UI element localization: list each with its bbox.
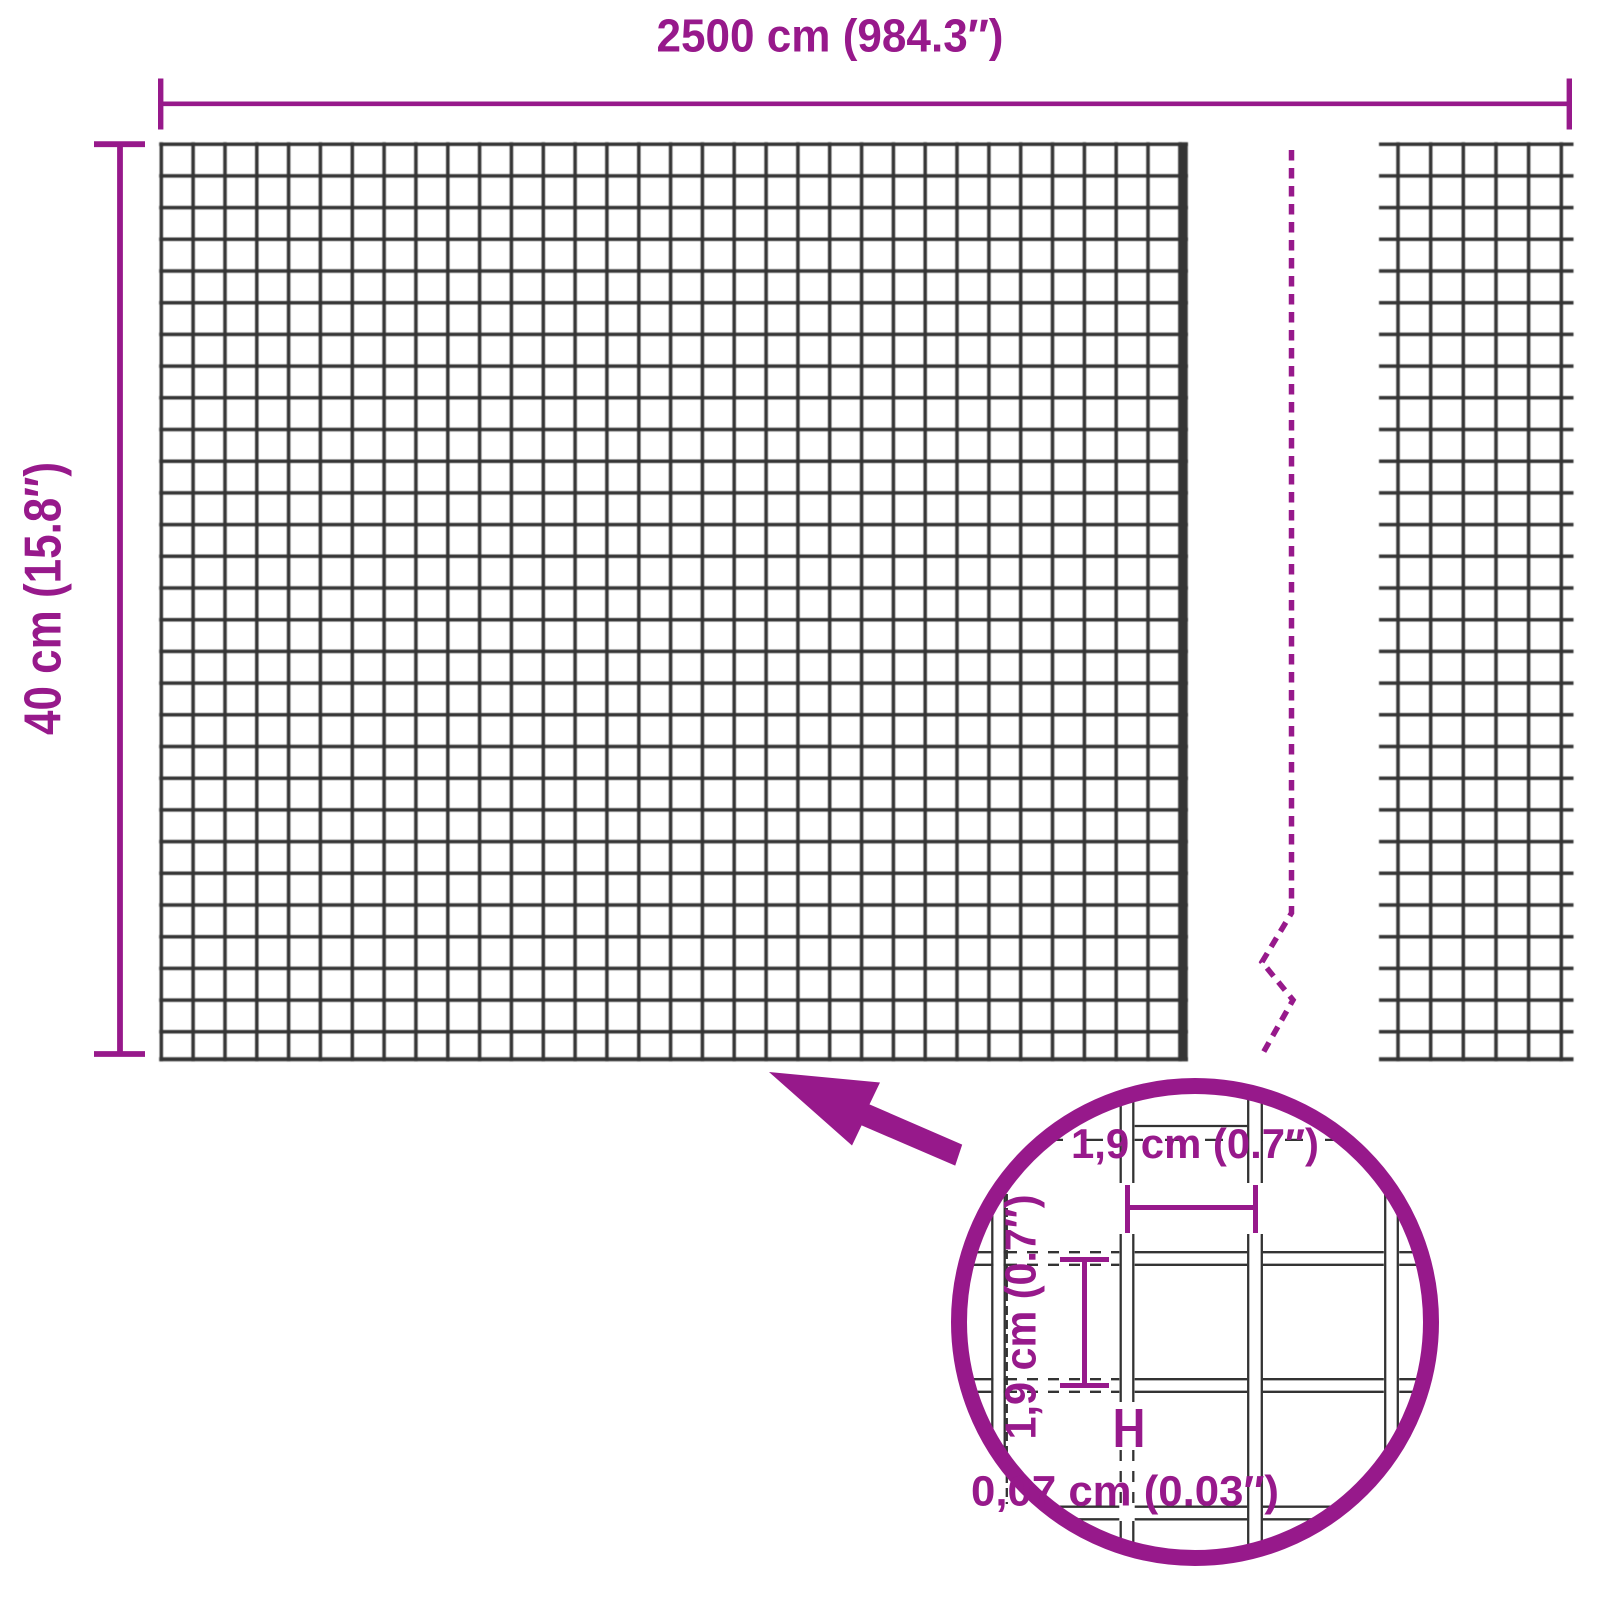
svg-text:1,9 cm (0.7″): 1,9 cm (0.7″) — [1071, 1120, 1319, 1167]
svg-text:40 cm (15.8″): 40 cm (15.8″) — [15, 462, 73, 735]
svg-text:0,07 cm (0.03″): 0,07 cm (0.03″) — [971, 1468, 1279, 1516]
svg-text:2500 cm (984.3″): 2500 cm (984.3″) — [657, 10, 1004, 62]
svg-text:1,9 cm (0.7″): 1,9 cm (0.7″) — [997, 1195, 1046, 1440]
